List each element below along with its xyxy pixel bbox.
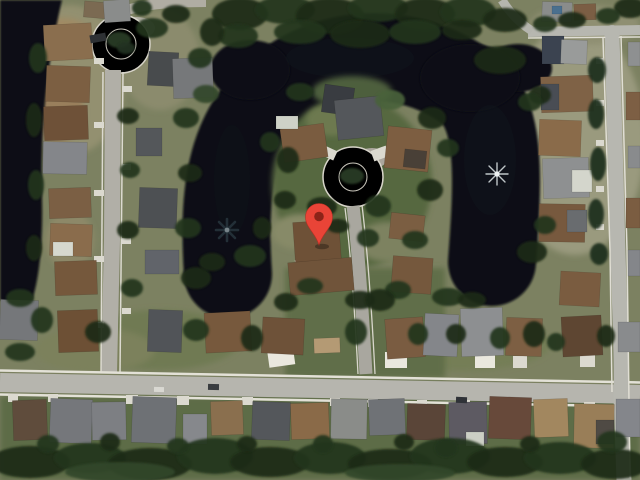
house-roof [572,170,592,192]
tree-canopy [340,168,364,184]
tree-canopy [590,147,606,181]
tree-canopy [523,321,545,347]
house-roof [626,92,640,120]
pin-shadow [315,244,329,250]
tree-canopy [297,278,323,294]
house-roof [533,398,568,437]
house-roof [210,400,243,435]
house-roof [290,402,329,439]
tree-canopy [162,5,190,23]
tree-canopy [31,307,53,333]
tree-canopy [136,18,168,38]
street-main [0,383,640,395]
tree-canopy [193,85,219,103]
tree-canopy [100,433,120,451]
tree-canopy [117,42,135,54]
house-roof [136,128,162,156]
tree-canopy [274,20,326,44]
house-roof [403,149,427,169]
fountain-east-center [494,171,499,176]
tree-canopy [234,245,266,267]
map-pin-dot [314,212,324,222]
tree-canopy [200,18,224,46]
tree-canopy [183,319,209,341]
water-sheen [464,105,516,215]
house-roof [48,187,91,218]
tree-canopy [178,164,202,182]
driveway [580,355,595,367]
house-roof [561,315,603,357]
tree-canopy [596,8,620,24]
tree-canopy [28,170,44,200]
tree-canopy [274,293,298,311]
satellite-map[interactable] [0,0,640,480]
driveway [122,308,131,314]
tree-canopy [437,139,459,157]
tree-canopy [274,191,296,209]
tree-canopy [313,435,333,453]
house-roof [43,142,88,175]
driveway [513,356,527,368]
tree-canopy [345,319,367,345]
tree-canopy [375,90,405,110]
tree-canopy [286,83,314,101]
tree-canopy [85,321,111,343]
house-roof [552,6,562,14]
house-roof [488,396,531,439]
house-roof [45,65,90,103]
tree-canopy [26,103,42,137]
house-roof [54,260,97,295]
tree-canopy [533,16,557,32]
tree-canopy [29,43,47,73]
tree-canopy [365,289,395,311]
house-roof [538,119,581,156]
tree-canopy [558,12,586,28]
tree-canopy [260,132,280,152]
tree-canopy [588,99,604,129]
house-roof [628,42,640,66]
tree-canopy [597,325,615,347]
car [456,397,467,403]
house-roof [559,271,601,307]
house-roof [331,399,368,440]
tree-canopy [167,438,189,454]
driveway [94,122,104,128]
tree-canopy [218,24,258,48]
tree-canopy [277,147,299,173]
tree-canopy [132,0,152,16]
house-roof [131,396,177,444]
tree-canopy [547,333,565,351]
tree-canopy [330,20,390,48]
house-roof [567,210,587,232]
house-roof [49,398,93,443]
tree-canopy [446,324,466,344]
tree-canopy [517,241,547,263]
tree-canopy [121,279,143,297]
house-roof [276,116,298,129]
tree-canopy [117,108,139,124]
car [154,387,164,392]
tree-canopy [442,20,482,40]
house-roof [53,242,73,256]
house-roof [618,322,640,352]
tree-canopy [458,292,486,308]
tree-canopy [389,20,441,44]
tree-canopy [175,218,201,238]
tree-canopy [490,327,510,349]
tree-canopy [435,439,457,457]
tree-canopy [120,162,140,178]
tree-canopy [417,179,443,201]
tree-canopy [237,436,257,452]
house-roof [103,0,130,23]
tree-canopy [588,57,606,83]
tree-canopy [188,48,212,68]
driveway [122,86,132,92]
driveway [242,397,253,405]
tree-canopy [37,435,59,453]
car [208,384,219,390]
satellite-imagery [0,0,640,480]
tree-canopy [402,231,428,249]
tree-canopy [181,267,211,289]
tree-canopy [590,243,608,265]
house-roof [626,198,640,228]
house-roof [145,250,179,274]
house-roof [43,105,88,141]
house-roof [147,309,182,352]
tree-canopy [520,436,540,452]
house-roof [43,23,93,61]
tree-canopy [483,8,527,32]
tree-canopy [199,253,225,271]
tree-canopy [26,235,42,261]
driveway [94,58,104,64]
tree-canopy [117,221,139,239]
driveway [94,190,104,196]
tree-canopy [534,216,556,234]
tree-canopy [518,93,542,111]
fountain-west-center [225,228,230,233]
tree-canopy [173,108,199,128]
house-roof [561,40,588,65]
tree-canopy [241,325,263,351]
tree-canopy [357,229,379,247]
tree-canopy [394,434,414,450]
house-roof [616,399,640,437]
tree-canopy [253,217,271,239]
driveway [596,186,604,192]
tree-canopy [474,46,526,74]
house-roof [261,317,305,355]
house-roof [628,146,640,168]
tree-canopy [5,343,35,361]
driveway [596,140,604,146]
junction [604,25,620,41]
house-roof [251,401,290,440]
driveway [177,396,189,405]
tree-canopy [408,323,428,345]
tree-canopy [418,107,446,129]
house-roof [368,398,405,435]
tree-canopy [6,289,34,307]
house-roof [138,187,177,228]
lake [210,40,290,100]
tree-canopy [588,199,604,229]
tree-canopy [365,195,391,217]
water-sheen [214,125,250,235]
house-roof [314,338,341,354]
house-roof [628,250,640,276]
house-roof [12,399,47,440]
house-roof [406,403,445,440]
tree-canopy [597,431,627,453]
